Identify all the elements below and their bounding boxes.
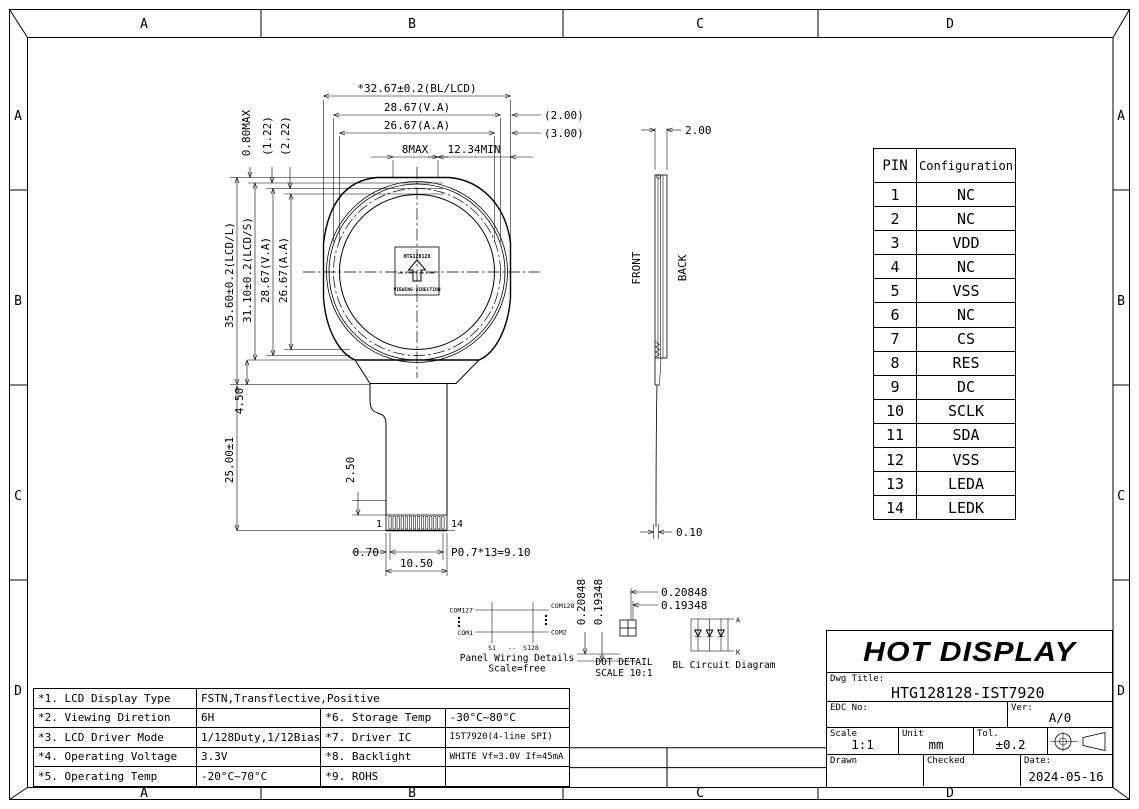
zone-label-bottom-a: A [140, 786, 148, 801]
pin-number: 13 [874, 472, 917, 496]
pin-row: 14LEDK [874, 496, 1016, 520]
dim-label-pad-height: 2.50 [344, 457, 357, 484]
seg-last-label: S128 [523, 644, 539, 652]
pin-number: 10 [874, 399, 917, 423]
dwg-title-label: Dwg Title: [830, 674, 884, 684]
pin-number: 1 [874, 183, 917, 207]
dim-label-thickness: 2.00 [685, 124, 712, 137]
spec-label: *6. Storage Temp [321, 708, 445, 728]
dwg-title-value: HTG128128-IST7920 [891, 684, 1045, 702]
third-angle-projection-icon [1048, 729, 1110, 754]
unit-cell: Unit mm [899, 728, 974, 754]
pin-number: 14 [874, 496, 917, 520]
side-fpc-tail [656, 385, 657, 527]
pin-config: NC [917, 183, 1016, 207]
spec-label: *9. ROHS [321, 767, 445, 787]
dot-dim-height-label: 0.19348 [661, 599, 707, 612]
edc-ver-row: EDC No: Ver: A/0 [827, 702, 1112, 728]
drawn-cell: Drawn [827, 755, 924, 786]
dim-label-height-aa: 26.67(A.A) [277, 237, 290, 303]
pin-config: SCLK [917, 399, 1016, 423]
spec-row: *2. Viewing Diretion 6H *6. Storage Temp… [34, 708, 570, 728]
zone-label-bottom-c: C [696, 786, 704, 801]
dim-label-height-lcd-l: 35.60±0.2(LCD/L) [223, 222, 236, 328]
spec-value: IST7920(4-line SPI) [445, 728, 569, 748]
date-label: Date: [1024, 756, 1051, 766]
spec-row: *5. Operating Temp -20°C~70°C *9. ROHS [34, 767, 570, 787]
date-value: 2024-05-16 [1021, 769, 1111, 784]
side-view: 2.00 0.10 FRONT BACK [630, 124, 712, 539]
com-bottom-left-label: COM1 [457, 629, 473, 637]
spec-label: *4. Operating Voltage [34, 747, 197, 767]
pin-config: LEDK [917, 496, 1016, 520]
pad-first-label: 1 [376, 519, 382, 530]
pin-config: SDA [917, 423, 1016, 447]
checked-cell: Checked [924, 755, 1021, 786]
spec-value: WHITE Vf=3.0V If=45mA [445, 747, 569, 767]
side-back-label: BACK [676, 254, 689, 281]
spec-value: -20°C~70°C [197, 767, 321, 787]
dim-label-pad-offset: 0.70 [353, 546, 380, 559]
spec-label: *3. LCD Driver Mode [34, 728, 197, 748]
company-logo: HOT DISPLAY [827, 631, 1112, 673]
zone-label-left-b: B [14, 294, 22, 309]
unit-value: mm [899, 737, 973, 752]
pin-number: 6 [874, 303, 917, 327]
spec-label: *2. Viewing Diretion [34, 708, 197, 728]
com-top-right-label: COM128 [551, 602, 575, 610]
zone-label-right-a: A [1117, 109, 1125, 124]
zone-label-top-c: C [696, 17, 704, 32]
dim-label-fpc-thickness: 0.10 [676, 526, 703, 539]
pin-row: 13LEDA [874, 472, 1016, 496]
spec-table: *1. LCD Display Type FSTN,Transflective,… [33, 688, 570, 787]
pin-number: 3 [874, 231, 917, 255]
dim-label-0-80max: 0.80MAX [240, 109, 253, 156]
spec-value: 6H [197, 708, 321, 728]
zone-label-top-b: B [408, 17, 416, 32]
zone-label-right-b: B [1117, 294, 1125, 309]
spec-value: 1/128Duty,1/12Bias [197, 728, 321, 748]
pin-row: 9DC [874, 375, 1016, 399]
zone-label-right-d: D [1117, 684, 1125, 699]
dim-label-2-00: (2.00) [544, 109, 584, 122]
pin-table-header-pin: PIN [874, 149, 917, 183]
panel-wiring-scale: Scale=free [488, 664, 545, 675]
pin-config: NC [917, 207, 1016, 231]
pin-row: 2NC [874, 207, 1016, 231]
dim-label-width-va: 28.67(V.A) [384, 101, 450, 114]
tol-cell: Tol. ±0.2 [974, 728, 1048, 754]
pin-table-header-row: PIN Configuration [874, 149, 1016, 183]
bl-circuit-title: BL Circuit Diagram [673, 660, 776, 671]
pin-number: 11 [874, 423, 917, 447]
dim-label-pad-pitch: P0.7*13=9.10 [451, 546, 530, 559]
pin-config: LEDA [917, 472, 1016, 496]
zone-label-top-d: D [946, 17, 954, 32]
pin-row: 7CS [874, 327, 1016, 351]
dim-label-1-22: (1.22) [261, 116, 274, 156]
dim-label-8max: 8MAX [402, 143, 429, 156]
pin-config: NC [917, 255, 1016, 279]
zone-label-top-a: A [140, 17, 148, 32]
edc-no-cell: EDC No: [827, 702, 1008, 727]
pin-config: CS [917, 327, 1016, 351]
pin-config: RES [917, 351, 1016, 375]
ver-value: A/0 [1008, 710, 1112, 725]
pin-number: 12 [874, 448, 917, 472]
spec-label: *7. Driver IC [321, 728, 445, 748]
drawn-checked-date-row: Drawn Checked Date: 2024-05-16 [827, 755, 1112, 786]
pin-number: 7 [874, 327, 917, 351]
dim-label-height-lcd-s: 31.10±0.2(LCD/S) [241, 217, 254, 323]
date-cell: Date: 2024-05-16 [1021, 755, 1111, 786]
dot-dim-height-rotated: 0.19348 [592, 579, 605, 625]
pin-configuration-table: PIN Configuration 1NC 2NC 3VDD 4NC 5VSS … [873, 148, 1016, 520]
front-view: 1 14 HTG128128 VIEWING DIRECTION [223, 82, 584, 576]
zone-label-bottom-b: B [408, 786, 416, 801]
dot-dim-width-label: 0.20848 [661, 586, 707, 599]
seg-first-label: S1 [488, 644, 496, 652]
pin-row: 10SCLK [874, 399, 1016, 423]
pin-row: 4NC [874, 255, 1016, 279]
dim-label-fpc-width: 10.50 [400, 557, 433, 570]
panel-wiring-title: Panel Wiring Details [460, 653, 574, 664]
dwg-title-row: Dwg Title: HTG128128-IST7920 [827, 673, 1112, 702]
dim-label-ledge: 4.50 [233, 388, 246, 415]
scale-value: 1:1 [827, 737, 898, 752]
spec-value: -30°C~80°C [445, 708, 569, 728]
dot-detail-scale: SCALE 10:1 [595, 668, 652, 679]
dim-label-fpc-length: 25.00±1 [223, 437, 236, 483]
drawn-label: Drawn [830, 756, 857, 766]
spec-row: *1. LCD Display Type FSTN,Transflective,… [34, 689, 570, 709]
pin-config: DC [917, 375, 1016, 399]
seg-dash-label: -- [508, 644, 516, 652]
pin-number: 2 [874, 207, 917, 231]
spec-value: 3.3V [197, 747, 321, 767]
zone-label-right-c: C [1117, 489, 1125, 504]
dim-label-3-00: (3.00) [544, 127, 584, 140]
ver-cell: Ver: A/0 [1008, 702, 1112, 727]
spec-label: *8. Backlight [321, 747, 445, 767]
com-top-left-label: COM127 [450, 607, 474, 615]
pin-row: 8RES [874, 351, 1016, 375]
pin-config: VSS [917, 448, 1016, 472]
com-bottom-right-label: COM2 [551, 629, 567, 637]
dim-label-2-22: (2.22) [279, 116, 292, 156]
dot-dim-width-rotated: 0.20848 [575, 579, 588, 625]
bl-anode-label: A [736, 617, 741, 625]
dim-label-height-va: 28.67(V.A) [259, 237, 272, 303]
pin-table-header-configuration: Configuration [917, 149, 1016, 183]
pin-row: 3VDD [874, 231, 1016, 255]
pin-row: 11SDA [874, 423, 1016, 447]
title-block: HOT DISPLAY Dwg Title: HTG128128-IST7920… [826, 630, 1113, 788]
dim-label-12-34min: 12.34MIN [448, 143, 501, 156]
pin-row: 6NC [874, 303, 1016, 327]
spec-value: FSTN,Transflective,Positive [197, 689, 570, 709]
zone-label-bottom-d: D [946, 786, 954, 801]
pin-row: 1NC [874, 183, 1016, 207]
bl-cathode-label: K [736, 649, 741, 657]
pin-number: 8 [874, 351, 917, 375]
pad-last-label: 14 [451, 519, 463, 530]
zone-label-left-d: D [14, 684, 22, 699]
bl-circuit-diagram: A K BL Circuit Diagram [673, 617, 776, 672]
scale-unit-tol-row: Scale 1:1 Unit mm Tol. ±0.2 [827, 728, 1112, 755]
edc-no-label: EDC No: [830, 703, 868, 713]
fpc-connector: 1 14 [376, 515, 463, 531]
pin-number: 9 [874, 375, 917, 399]
label-box-part-number: HTG128128 [403, 254, 430, 260]
pin-row: 12VSS [874, 448, 1016, 472]
spec-label: *5. Operating Temp [34, 767, 197, 787]
projection-cell [1048, 728, 1111, 754]
drawing-sheet: { "colors": {"line": "#000000", "paper":… [0, 0, 1139, 809]
spec-row: *4. Operating Voltage 3.3V *8. Backlight… [34, 747, 570, 767]
pin-row: 5VSS [874, 279, 1016, 303]
spec-value [445, 767, 569, 787]
dot-detail-title: DOT DETAIL [595, 657, 652, 668]
dimension-lines: *32.67±0.2(BL/LCD) 28.67(V.A) (2.00) 26.… [223, 82, 584, 571]
pin-config: VDD [917, 231, 1016, 255]
tol-value: ±0.2 [974, 737, 1047, 752]
dim-label-width-aa: 26.67(A.A) [384, 119, 450, 132]
panel-wiring-details: COM127 COM1 COM128 COM2 S1 -- S128 Panel… [450, 602, 575, 675]
dim-label-width-bl-lcd: *32.67±0.2(BL/LCD) [357, 82, 476, 95]
label-box-viewing-direction: VIEWING DIRECTION [393, 287, 440, 293]
company-logo-text: HOT DISPLAY [863, 636, 1076, 668]
pin-number: 4 [874, 255, 917, 279]
spec-row: *3. LCD Driver Mode 1/128Duty,1/12Bias *… [34, 728, 570, 748]
pin-config: VSS [917, 279, 1016, 303]
zone-label-left-a: A [14, 109, 22, 124]
zone-label-left-c: C [14, 489, 22, 504]
pin-config: NC [917, 303, 1016, 327]
checked-label: Checked [927, 756, 965, 766]
scale-cell: Scale 1:1 [827, 728, 899, 754]
spec-label: *1. LCD Display Type [34, 689, 197, 709]
side-front-label: FRONT [630, 251, 643, 284]
pin-number: 5 [874, 279, 917, 303]
